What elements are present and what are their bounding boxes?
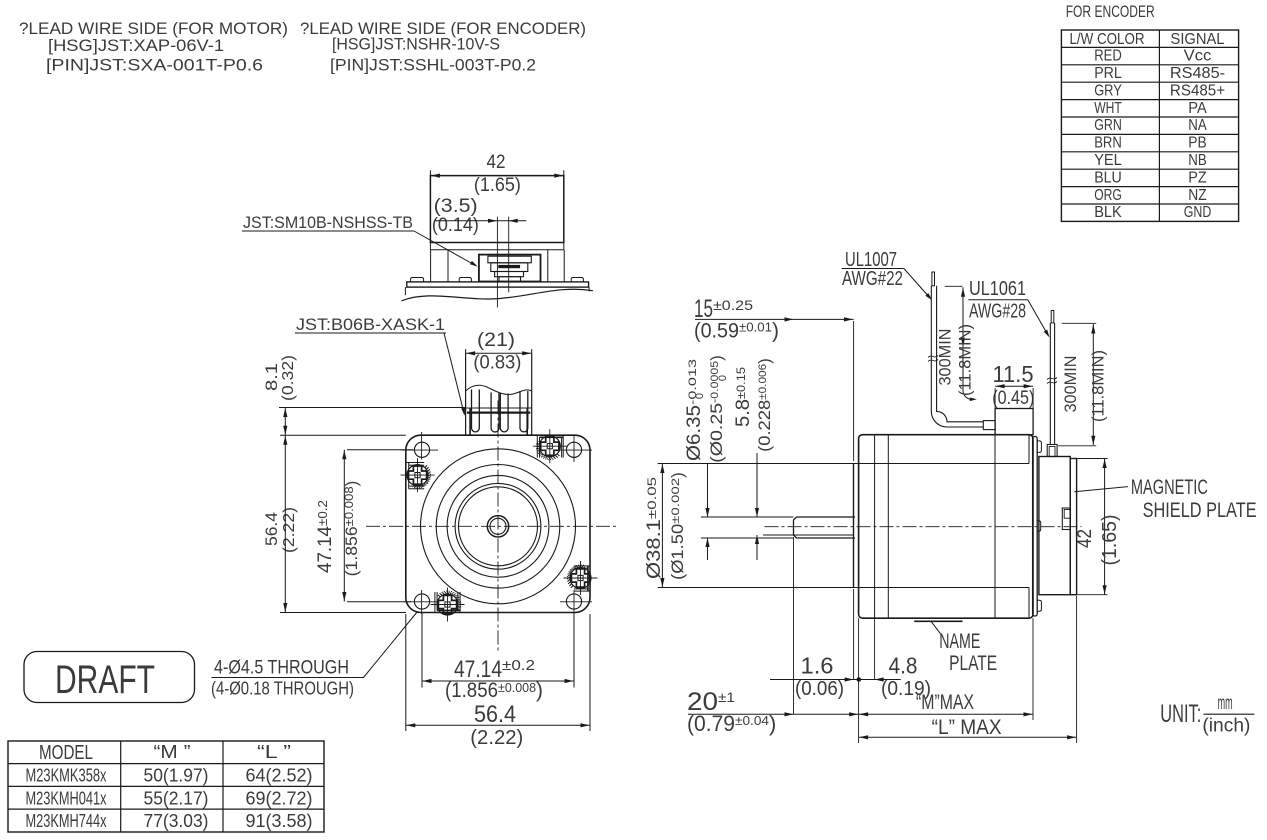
svg-text:AWG#22: AWG#22 bbox=[842, 268, 903, 290]
svg-text:PZ: PZ bbox=[1188, 169, 1207, 186]
svg-text:(0.06): (0.06) bbox=[795, 678, 844, 700]
svg-text:(21): (21) bbox=[477, 330, 515, 351]
svg-text:M23KMH041x: M23KMH041x bbox=[26, 788, 107, 808]
svg-text:BRN: BRN bbox=[1094, 135, 1122, 152]
svg-text:FOR ENCODER: FOR ENCODER bbox=[1066, 2, 1155, 21]
svg-text:77(3.03): 77(3.03) bbox=[144, 811, 209, 831]
svg-text:(1.65): (1.65) bbox=[474, 175, 521, 196]
svg-text:DRAFT: DRAFT bbox=[55, 658, 155, 702]
svg-text:4-Ø4.5 THROUGH: 4-Ø4.5 THROUGH bbox=[214, 658, 349, 679]
svg-text:(11.8MIN): (11.8MIN) bbox=[956, 324, 975, 396]
svg-text:BLK: BLK bbox=[1094, 204, 1122, 221]
svg-text:“M ”: “M ” bbox=[154, 742, 191, 762]
svg-text:AWG#28: AWG#28 bbox=[969, 301, 1026, 323]
svg-text:8.1: 8.1 bbox=[262, 363, 281, 391]
svg-text:0: 0 bbox=[694, 393, 706, 399]
svg-text:NA: NA bbox=[1188, 117, 1207, 134]
svg-text:55(2.17): 55(2.17) bbox=[144, 788, 209, 808]
svg-text:PB: PB bbox=[1188, 135, 1206, 152]
svg-text:1.6: 1.6 bbox=[801, 653, 834, 679]
svg-text:SHIELD PLATE: SHIELD PLATE bbox=[1143, 499, 1257, 522]
svg-text:64(2.52): 64(2.52) bbox=[246, 766, 313, 786]
svg-text:PA: PA bbox=[1188, 100, 1207, 117]
svg-text:(0.32): (0.32) bbox=[280, 355, 297, 401]
svg-text:UL1061: UL1061 bbox=[969, 278, 1026, 300]
svg-text:[PIN]JST:SXA-001T-P0.6: [PIN]JST:SXA-001T-P0.6 bbox=[46, 56, 263, 75]
svg-text:Vcc: Vcc bbox=[1184, 48, 1212, 65]
svg-text:RED: RED bbox=[1094, 48, 1122, 65]
svg-text:91(3.58): 91(3.58) bbox=[246, 811, 313, 831]
svg-text:PLATE: PLATE bbox=[949, 652, 997, 675]
svg-text:GRY: GRY bbox=[1094, 82, 1122, 99]
svg-text:L/W COLOR: L/W COLOR bbox=[1070, 31, 1145, 48]
svg-text:300MIN: 300MIN bbox=[1061, 356, 1080, 413]
svg-text:(3.5): (3.5) bbox=[434, 196, 478, 217]
svg-text:M23KMK358x: M23KMK358x bbox=[26, 766, 107, 786]
svg-text:(0.45): (0.45) bbox=[992, 388, 1034, 409]
svg-text:MAGNETIC: MAGNETIC bbox=[1131, 476, 1208, 499]
svg-text:RS485+: RS485+ bbox=[1170, 82, 1225, 99]
svg-text:300MIN: 300MIN bbox=[936, 329, 955, 386]
svg-text:MODEL: MODEL bbox=[39, 742, 93, 764]
svg-text:NAME: NAME bbox=[939, 630, 980, 653]
svg-text:56.4: 56.4 bbox=[474, 701, 516, 728]
svg-text:(11.8MIN): (11.8MIN) bbox=[1089, 350, 1108, 422]
svg-text:JST:SM10B-NSHSS-TB: JST:SM10B-NSHSS-TB bbox=[243, 213, 413, 232]
svg-text:GRN: GRN bbox=[1094, 117, 1122, 134]
svg-text:(2.22): (2.22) bbox=[281, 507, 298, 553]
svg-text:UNIT:: UNIT: bbox=[1160, 700, 1201, 728]
svg-text:(1.65): (1.65) bbox=[1099, 515, 1121, 566]
svg-text:ORG: ORG bbox=[1094, 187, 1122, 204]
svg-text:“M”MAX: “M”MAX bbox=[916, 691, 974, 714]
svg-text:(0.14): (0.14) bbox=[432, 215, 479, 236]
svg-text:PRL: PRL bbox=[1094, 65, 1122, 82]
svg-text:SIGNAL: SIGNAL bbox=[1171, 31, 1225, 48]
svg-text:[HSG]JST:NSHR-10V-S: [HSG]JST:NSHR-10V-S bbox=[332, 35, 500, 54]
svg-text:“L” MAX: “L” MAX bbox=[932, 716, 1002, 739]
svg-text:[PIN]JST:SSHL-003T-P0.2: [PIN]JST:SSHL-003T-P0.2 bbox=[330, 56, 536, 75]
svg-text:11.5: 11.5 bbox=[993, 361, 1034, 387]
svg-text:69(2.72): 69(2.72) bbox=[246, 788, 313, 808]
svg-text:(inch): (inch) bbox=[1202, 716, 1250, 737]
svg-text:WHT: WHT bbox=[1094, 100, 1122, 117]
svg-text:“L ”: “L ” bbox=[257, 742, 291, 762]
svg-text:[HSG]JST:XAP-06V-1: [HSG]JST:XAP-06V-1 bbox=[48, 36, 224, 55]
svg-text:BLU: BLU bbox=[1094, 169, 1122, 186]
svg-text:NB: NB bbox=[1188, 152, 1206, 169]
svg-text:50(1.97): 50(1.97) bbox=[144, 766, 209, 786]
svg-text:YEL: YEL bbox=[1094, 152, 1122, 169]
svg-text:JST:B06B-XASK-1: JST:B06B-XASK-1 bbox=[296, 315, 445, 334]
svg-text:0: 0 bbox=[717, 375, 729, 381]
svg-text:(0.83): (0.83) bbox=[473, 353, 521, 374]
svg-text:42: 42 bbox=[487, 152, 506, 173]
svg-text:4.8: 4.8 bbox=[889, 653, 918, 679]
svg-text:RS485-: RS485- bbox=[1170, 65, 1225, 82]
svg-text:42: 42 bbox=[1074, 529, 1096, 548]
svg-text:M23KMH744x: M23KMH744x bbox=[26, 811, 107, 831]
svg-text:(4-Ø0.18 THROUGH): (4-Ø0.18 THROUGH) bbox=[211, 679, 354, 699]
svg-text:mm: mm bbox=[1218, 693, 1233, 714]
svg-text:(2.22): (2.22) bbox=[470, 727, 523, 749]
svg-text:56.4: 56.4 bbox=[262, 512, 281, 546]
svg-text:GND: GND bbox=[1184, 204, 1212, 221]
svg-text:NZ: NZ bbox=[1188, 187, 1207, 204]
